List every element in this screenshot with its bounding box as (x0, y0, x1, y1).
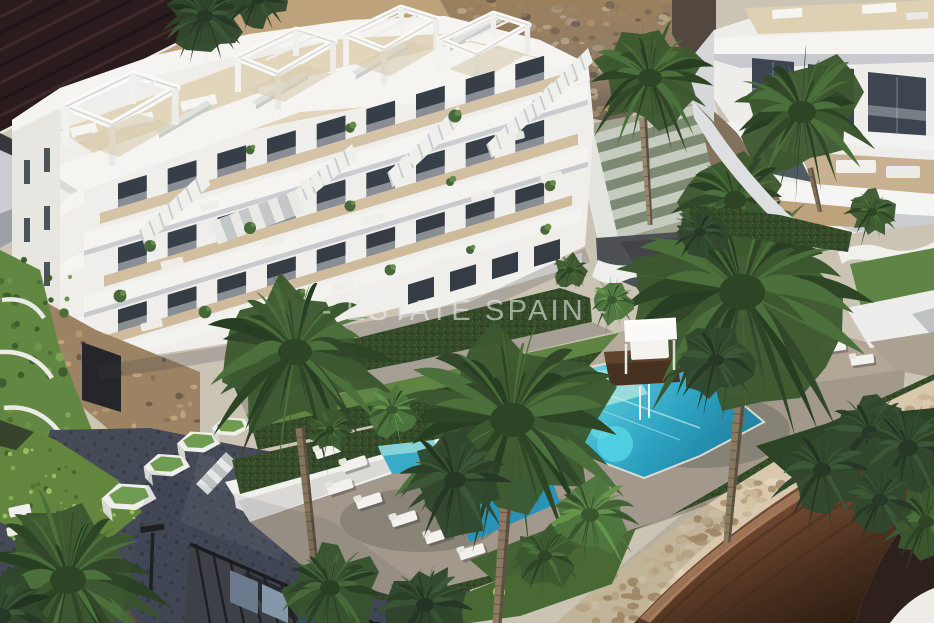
svg-text:- ESTATE SPAIN -: - ESTATE SPAIN - (322, 295, 610, 327)
